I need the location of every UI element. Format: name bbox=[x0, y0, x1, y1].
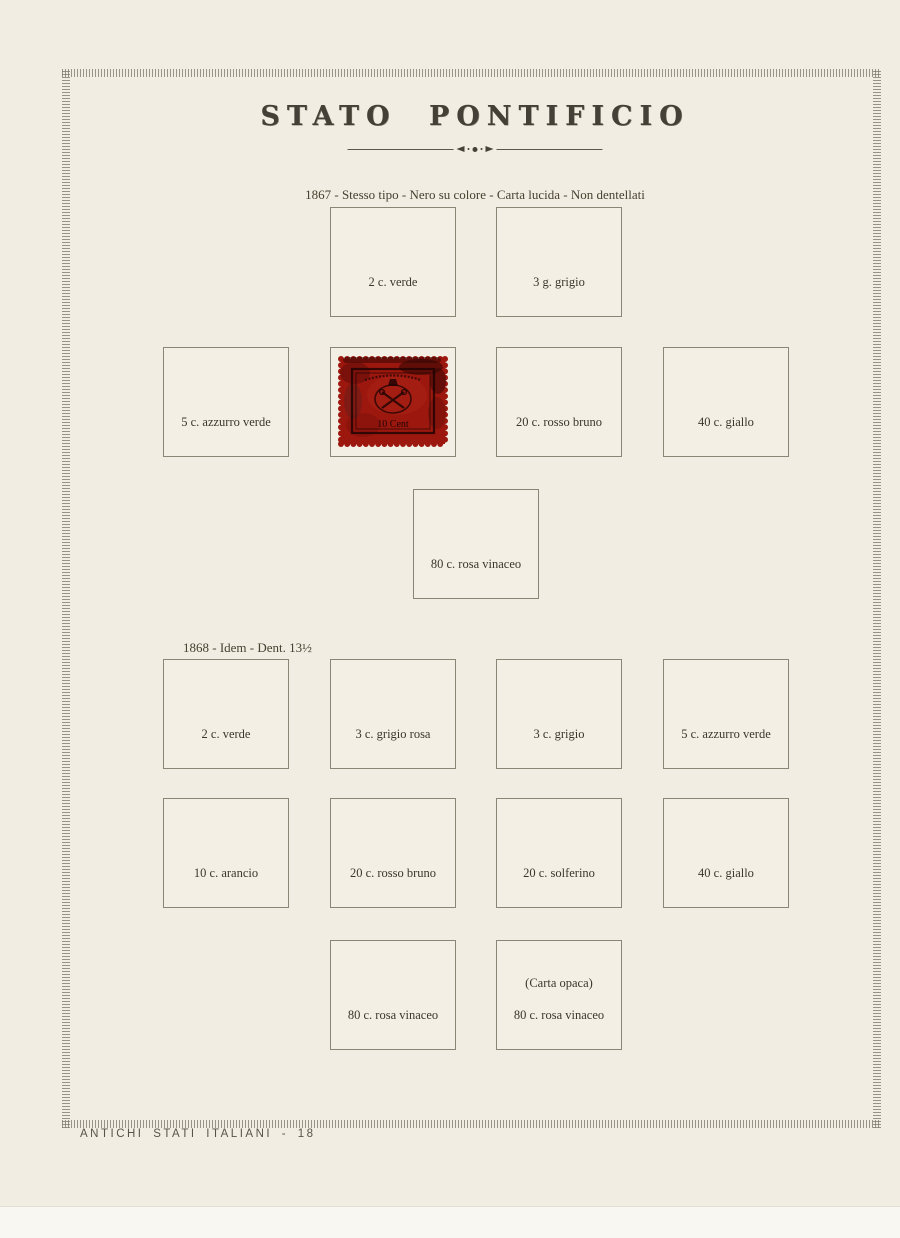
title-ornament bbox=[348, 146, 603, 152]
stamp-inscription: 10 Cent bbox=[377, 419, 409, 430]
stamp-label: 20 c. solferino bbox=[523, 866, 595, 881]
stamp-label: 2 c. verde bbox=[369, 275, 418, 290]
stamp-box-40c-giallo-1868: 40 c. giallo bbox=[663, 798, 789, 908]
stamp-box-3c-grigio-rosa-1868: 3 c. grigio rosa bbox=[330, 659, 456, 769]
stamp-box-20c-solferino-1868: 20 c. solferino bbox=[496, 798, 622, 908]
stamp-label: 20 c. rosso bruno bbox=[516, 415, 602, 430]
stamp-box-2c-verde-1868: 2 c. verde bbox=[163, 659, 289, 769]
stamp-box-3g-grigio-1867: 3 g. grigio bbox=[496, 207, 622, 317]
page-footer: ANTICHI STATI ITALIANI - 18 bbox=[80, 1128, 316, 1140]
stamp-box-80c-rosa-vinaceo-1868: 80 c. rosa vinaceo bbox=[330, 940, 456, 1050]
frame-border-left bbox=[62, 69, 70, 1128]
ornament-arrow-right-icon bbox=[486, 146, 494, 152]
album-page: STATO PONTIFICIO 1867 - Stesso tipo - Ne… bbox=[0, 0, 900, 1238]
stamp-label: 40 c. giallo bbox=[698, 415, 754, 430]
stamp-box-3c-grigio-1868: 3 c. grigio bbox=[496, 659, 622, 769]
stamp-box-20c-rosso-bruno-1868: 20 c. rosso bruno bbox=[330, 798, 456, 908]
stamp-image-10-cent-red: 10 Cent bbox=[335, 353, 451, 450]
section-heading-1867: 1867 - Stesso tipo - Nero su colore - Ca… bbox=[50, 187, 900, 203]
ornament-line-left bbox=[348, 149, 454, 150]
ornament-arrow-left-icon bbox=[457, 146, 465, 152]
stamp-label: 20 c. rosso bruno bbox=[350, 866, 436, 881]
frame-border-right bbox=[873, 69, 881, 1128]
stamp-sublabel: (Carta opaca) bbox=[525, 976, 593, 991]
stamp-box-5c-azzurro-verde-1868: 5 c. azzurro verde bbox=[663, 659, 789, 769]
frame-border-top bbox=[62, 69, 881, 77]
stamp-box-10c-arancio-1868: 10 c. arancio bbox=[163, 798, 289, 908]
stamp-label: 80 c. rosa vinaceo bbox=[431, 557, 521, 572]
stamp-label: 3 c. grigio rosa bbox=[356, 727, 431, 742]
stamp-box-2c-verde-1867: 2 c. verde bbox=[330, 207, 456, 317]
stamp-label: 3 g. grigio bbox=[533, 275, 585, 290]
ornament-line-right bbox=[497, 149, 603, 150]
stamp-label: 40 c. giallo bbox=[698, 866, 754, 881]
section-heading-1868: 1868 - Idem - Dent. 13½ bbox=[183, 640, 312, 656]
stamp-label: 80 c. rosa vinaceo bbox=[348, 1008, 438, 1023]
stamp-box-80c-rosa-vinaceo-carta-opaca-1868: (Carta opaca) 80 c. rosa vinaceo bbox=[496, 940, 622, 1050]
stamp-label: 80 c. rosa vinaceo bbox=[514, 1008, 604, 1023]
stamp-box-80c-rosa-vinaceo-1867: 80 c. rosa vinaceo bbox=[413, 489, 539, 599]
page-bottom-edge bbox=[0, 1206, 900, 1238]
stamp-box-10c-mounted: 10 Cent bbox=[330, 347, 456, 457]
stamp-label: 5 c. azzurro verde bbox=[681, 727, 771, 742]
ornament-dot-icon bbox=[468, 148, 470, 150]
stamp-label: 10 c. arancio bbox=[194, 866, 258, 881]
ornament-dot-icon bbox=[481, 148, 483, 150]
page-title: STATO PONTIFICIO bbox=[50, 101, 900, 132]
frame-border-bottom bbox=[62, 1120, 881, 1128]
stamp-label: 2 c. verde bbox=[202, 727, 251, 742]
stamp-box-20c-rosso-bruno-1867: 20 c. rosso bruno bbox=[496, 347, 622, 457]
stamp-label: 3 c. grigio bbox=[533, 727, 584, 742]
ornament-dot-icon bbox=[473, 147, 478, 152]
stamp-box-5c-azzurro-verde-1867: 5 c. azzurro verde bbox=[163, 347, 289, 457]
stamp-box-40c-giallo-1867: 40 c. giallo bbox=[663, 347, 789, 457]
stamp-label: 5 c. azzurro verde bbox=[181, 415, 271, 430]
